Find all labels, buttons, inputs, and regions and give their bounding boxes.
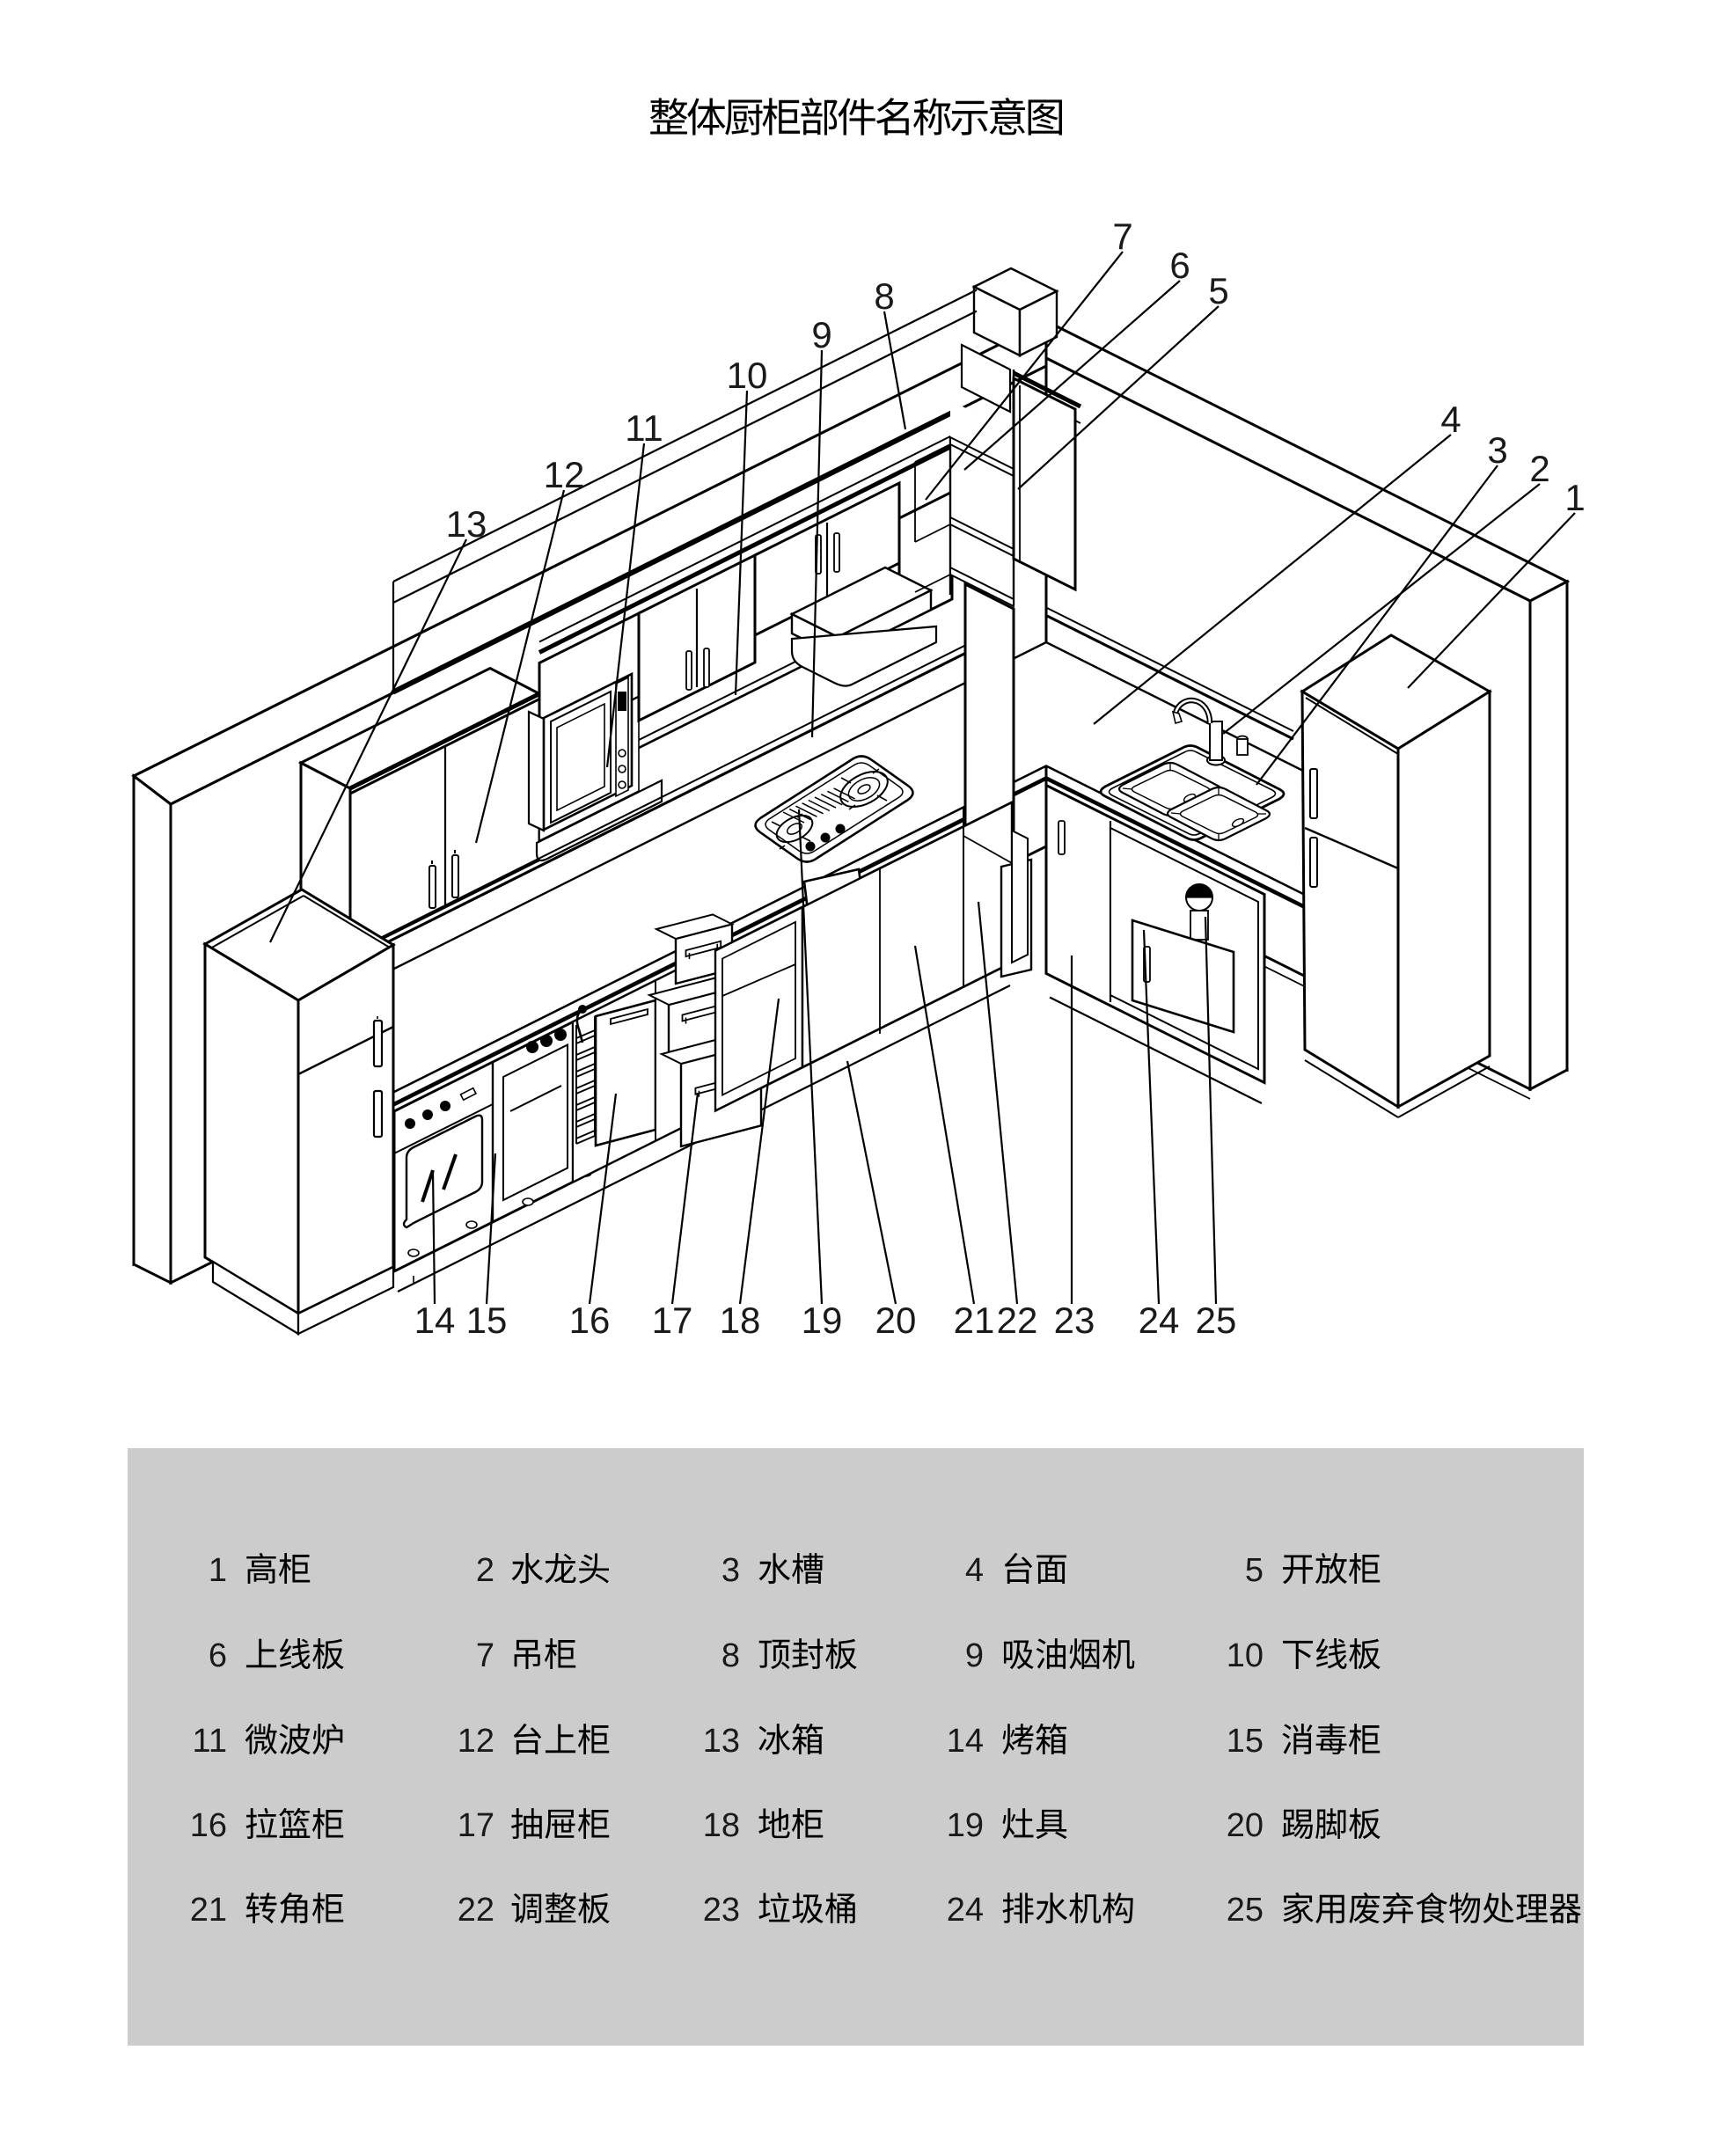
svg-text:19: 19 [947,1807,984,1844]
svg-text:4: 4 [1440,399,1461,440]
svg-text:3: 3 [1487,429,1507,471]
svg-text:24: 24 [947,1892,984,1929]
svg-text:23: 23 [703,1892,740,1929]
svg-text:7: 7 [1112,216,1132,257]
svg-text:21: 21 [954,1300,995,1341]
svg-text:11: 11 [193,1723,227,1760]
svg-text:3: 3 [722,1552,740,1589]
svg-text:22: 22 [458,1892,494,1929]
svg-text:10: 10 [1227,1637,1264,1674]
svg-text:16: 16 [190,1807,227,1844]
svg-text:2: 2 [1529,448,1549,489]
svg-text:9: 9 [965,1637,984,1674]
svg-text:12: 12 [544,454,585,495]
svg-text:5: 5 [1208,270,1228,311]
svg-text:18: 18 [703,1807,740,1844]
svg-text:6: 6 [1169,245,1190,286]
svg-text:16: 16 [569,1300,611,1341]
svg-text:4: 4 [965,1552,984,1589]
svg-text:15: 15 [1227,1723,1264,1760]
svg-text:24: 24 [1139,1300,1180,1341]
svg-text:14: 14 [414,1300,456,1341]
svg-text:20: 20 [875,1300,917,1341]
svg-text:9: 9 [811,314,831,355]
svg-text:17: 17 [458,1807,494,1844]
svg-text:25: 25 [1196,1300,1237,1341]
svg-text:17: 17 [652,1300,693,1341]
svg-text:21: 21 [190,1892,227,1929]
svg-text:13: 13 [446,503,487,545]
svg-text:2: 2 [476,1552,494,1589]
svg-text:25: 25 [1227,1892,1264,1929]
svg-text:20: 20 [1227,1807,1264,1844]
svg-text:12: 12 [458,1723,494,1760]
svg-text:14: 14 [947,1723,984,1760]
svg-text:1: 1 [209,1552,227,1589]
svg-text:7: 7 [476,1637,494,1674]
svg-text:18: 18 [720,1300,761,1341]
svg-text:5: 5 [1245,1552,1264,1589]
svg-text:8: 8 [722,1637,740,1674]
svg-text:15: 15 [466,1300,508,1341]
svg-text:11: 11 [625,407,663,449]
svg-text:6: 6 [209,1637,227,1674]
svg-text:1: 1 [1564,477,1585,518]
svg-text:8: 8 [874,275,894,317]
svg-text:22: 22 [997,1300,1038,1341]
svg-text:10: 10 [727,355,768,396]
svg-text:19: 19 [802,1300,843,1341]
svg-text:13: 13 [703,1723,740,1760]
svg-text:23: 23 [1054,1300,1095,1341]
